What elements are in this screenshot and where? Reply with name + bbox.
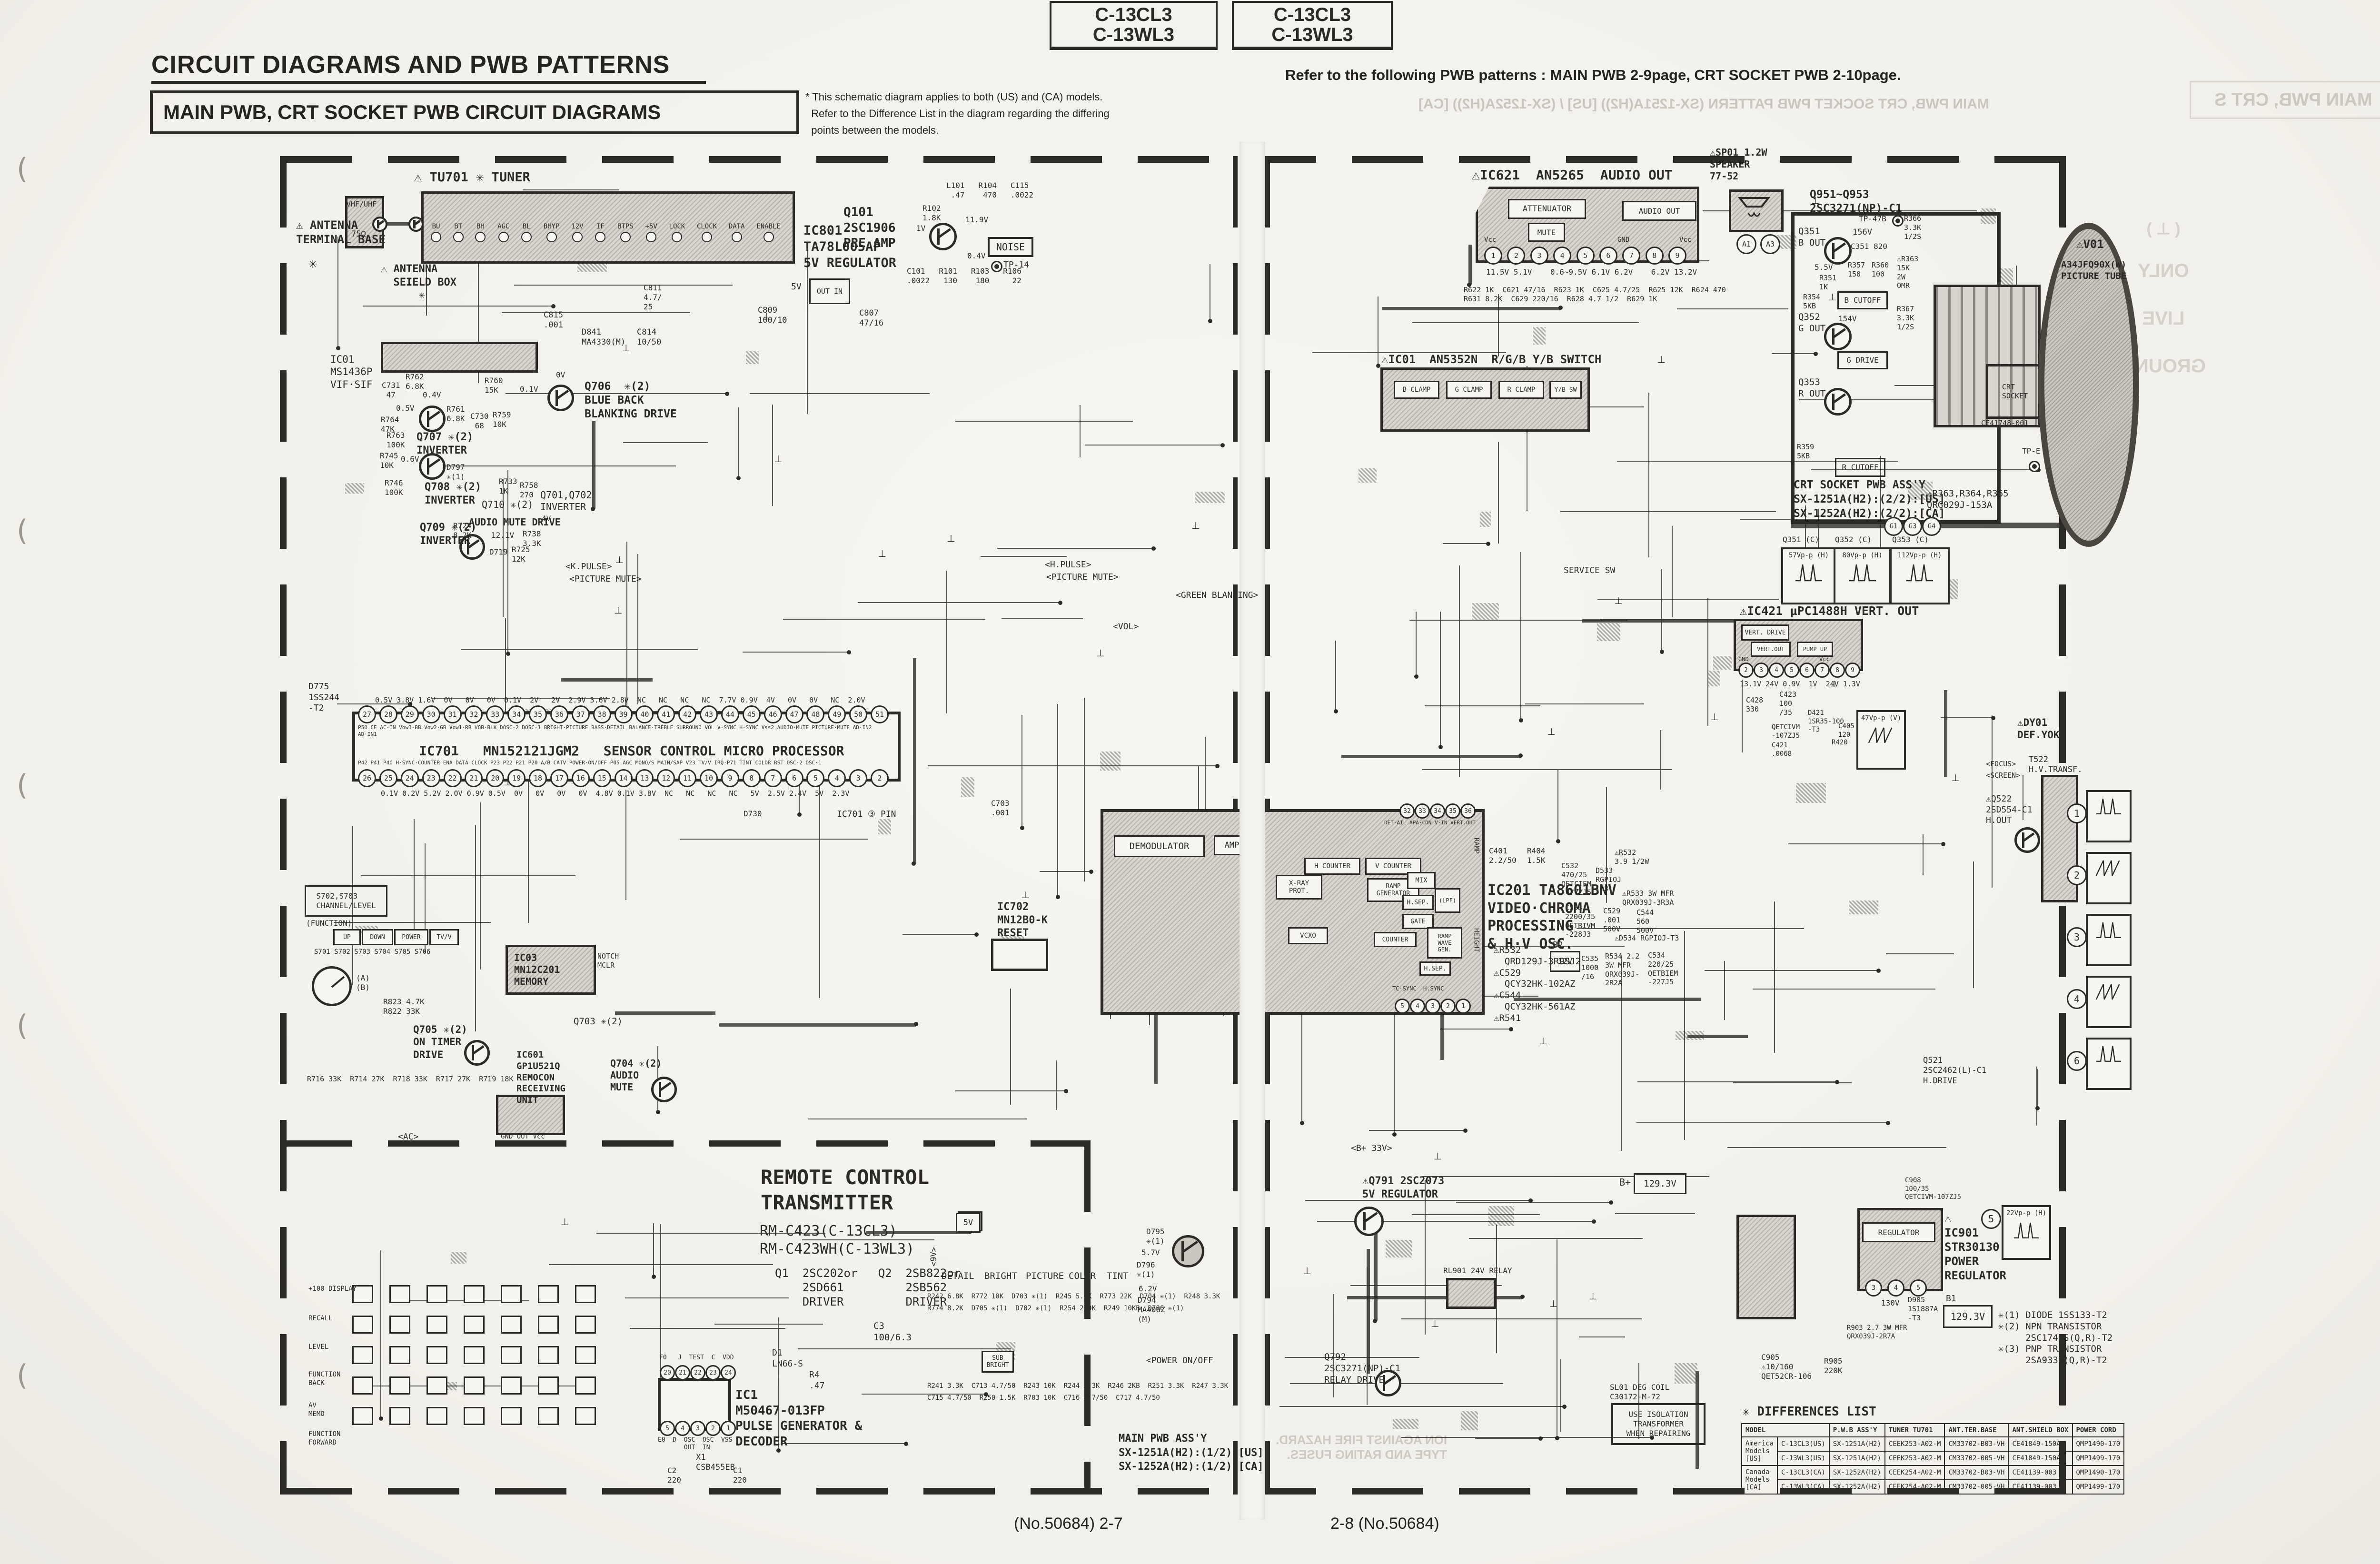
vert-part: C428 330 <box>1746 696 1763 714</box>
ic701-pin: 45 <box>743 705 761 723</box>
junction-dot <box>1609 1200 1613 1205</box>
ic201-height: HEIGHT <box>1472 928 1480 952</box>
ic701-pin: 4 <box>828 769 846 787</box>
snub-part: C532 470/25 QETCIEM -477ZJ5 <box>1561 861 1591 897</box>
b1-box: 129.3V <box>1943 1305 1993 1328</box>
wire-segment <box>615 1011 716 1015</box>
ic601-pins: GND OUT Vcc <box>501 1133 545 1141</box>
ic701-pin: 49 <box>828 705 846 723</box>
ground-symbol: ⊥ <box>615 554 624 565</box>
crt-v154: 154V <box>1838 314 1857 324</box>
bb-part: R760 15K <box>485 376 503 395</box>
tpe-label: TP-E <box>2022 446 2041 456</box>
remote-key-label: LEVEL <box>308 1343 328 1352</box>
ic621-pin: 6 <box>1599 247 1617 265</box>
q101-part: L101 R104 C115 .47 470 .0022 <box>946 181 1033 200</box>
v57-label: 5.7V <box>1141 1248 1160 1257</box>
diff-cell: CEEK253-A02-M <box>1885 1437 1945 1451</box>
junction-dot <box>1414 674 1418 679</box>
ic421-volts: 13.1V 24V 0.9V 1V 24V 1.3V <box>1740 680 1860 689</box>
remote-key <box>426 1285 447 1303</box>
q101-volt: 11.9V <box>965 215 988 225</box>
junction-dot <box>1660 650 1664 654</box>
ic201-warnings: ⚠R532 QRD129J-3R9SJ2 ⚠C529 QCY32HK-102AZ… <box>1494 945 1581 1024</box>
wire-segment <box>798 1348 1011 1349</box>
ic701-pin: 14 <box>615 769 633 787</box>
remote-key <box>538 1407 559 1425</box>
ic1-pin: 1 <box>721 1421 736 1436</box>
wire-segment <box>1661 569 1662 652</box>
dial-ab-labels: (A) (B) <box>356 973 370 992</box>
sig-vol: <VOL> <box>1113 622 1139 633</box>
ic621-pin: 1 <box>1484 247 1502 265</box>
vert-part: C405 120 <box>1838 723 1854 739</box>
diff-header: ANT.TER.BASE <box>1944 1424 2008 1437</box>
wire-segment <box>719 1023 916 1027</box>
wire-segment <box>660 1224 661 1388</box>
remote-key <box>389 1316 410 1334</box>
c1-label: C1 220 <box>733 1466 747 1485</box>
focus-label: <FOCUS> <box>1986 760 2016 769</box>
remote-key <box>575 1346 596 1364</box>
registration-mark: ( <box>17 1009 28 1042</box>
model-box-2: C-13CL3 C-13WL3 <box>1232 1 1393 50</box>
wire-segment <box>858 602 1060 603</box>
diff-cell: CM33702-005-VH <box>1944 1451 2008 1465</box>
wire-segment <box>743 652 849 653</box>
wire-segment <box>913 658 916 863</box>
diff-header: POWER CORD <box>2073 1424 2124 1437</box>
bplus-value: 129.3V <box>1644 1178 1676 1189</box>
ic901-block <box>1857 1208 1943 1291</box>
component-shade <box>1393 1419 1418 1429</box>
ic1-pin: 22 <box>690 1365 705 1380</box>
ic621-pin: 5 <box>1577 247 1595 265</box>
diff-cell: C-13CL3(CA) <box>1777 1465 1829 1480</box>
diff-cell: SX-1251A(H2) <box>1829 1437 1885 1451</box>
wire-segment <box>1425 1180 1426 1335</box>
ground-symbol: ⊥ <box>774 453 782 465</box>
ic701-pin3-note: IC701 ③ PIN <box>837 809 896 820</box>
noise-box: NOISE <box>988 237 1033 257</box>
bleed-box-text: MAIN PWB, CRT S <box>2214 90 2372 110</box>
q522-label: ⚠Q522 2SD554-C1 H.OUT <box>1986 794 2033 826</box>
d1-label: D1 LN66-S <box>772 1348 803 1369</box>
tuner-pin <box>620 232 631 242</box>
sig-hpulse: <H.PULSE> <box>1045 560 1091 571</box>
ic701-pin: 31 <box>444 705 462 723</box>
component-shade <box>1849 901 1878 914</box>
ic701-pin: 16 <box>572 769 590 787</box>
q792-label: Q792 2SC3271(NP)-C1 RELAY DRIVE <box>1324 1352 1400 1386</box>
junction-dot <box>725 392 729 396</box>
ic621-parts: R622 1K C621 47/16 R623 1K C625 4.7/25 R… <box>1464 286 1726 304</box>
remote-key <box>389 1376 410 1395</box>
speaker-icon <box>1735 194 1773 223</box>
junction-dot <box>1558 306 1563 310</box>
q708-label: Q708 ✳(2) INVERTER <box>425 481 481 507</box>
ground-symbol: ⊥ <box>1549 1298 1557 1309</box>
ic201-pin: 3 <box>1425 999 1440 1014</box>
bb-part: R724 8.2K <box>453 521 472 540</box>
remote-key-label: FUNCTION FORWARD <box>308 1430 340 1447</box>
ic701-pin: 5 <box>806 769 824 787</box>
ic701-pin: 22 <box>444 769 462 787</box>
wire-segment <box>1084 698 1085 881</box>
diff-cell: QMP1499-170 <box>2073 1480 2124 1494</box>
wire-segment <box>1412 322 1639 323</box>
wire-segment <box>361 875 575 876</box>
frame-top <box>281 156 2066 163</box>
diff-cell: QMP1490-170 <box>2073 1437 2124 1451</box>
bb-part: R762 6.8K <box>406 372 424 391</box>
page-subtitle: MAIN PWB, CRT SOCKET PWB CIRCUIT DIAGRAM… <box>163 101 661 124</box>
remote-key-label: RECALL <box>308 1315 333 1323</box>
ic701-pin: 18 <box>529 769 547 787</box>
component-shade <box>1713 656 1732 670</box>
bb-volt: 12.1V <box>491 531 514 540</box>
ic801-part: C809 100/10 <box>758 306 787 326</box>
wire-segment <box>783 619 985 620</box>
rgbsw-gclamp: G CLAMP <box>1446 381 1492 399</box>
ic421-pin: 9 <box>1845 663 1860 678</box>
wave5-box: 22Vp-p (H) <box>2002 1205 2051 1260</box>
wire-segment <box>1469 1238 1643 1239</box>
ic801-part: C814 10/50 <box>637 327 661 348</box>
isolation-warning-box: USE ISOLATION TRANSFORMER WHEN REPAIRING <box>1611 1403 1706 1445</box>
junction-dot <box>1518 753 1523 758</box>
junction-dot <box>1463 1128 1468 1133</box>
wire-segment <box>997 548 1153 549</box>
ic1-label: IC1 M50467-013FP PULSE GENERATOR & DECOD… <box>735 1387 862 1449</box>
junction-dot <box>1556 839 1560 843</box>
wire-segment <box>592 421 595 509</box>
tuner-pin <box>646 232 656 242</box>
wire-segment <box>981 556 1067 557</box>
snub-part: C533 2200/35 QETBIVM -228J3 <box>1565 903 1595 939</box>
bb-volt: 4V <box>542 514 551 524</box>
junction-dot <box>797 812 802 817</box>
d905-label: D905 1S1887A -T3 <box>1908 1296 1938 1322</box>
diff-cell: CE41139-003 <box>2008 1465 2072 1480</box>
model-2-line1: C-13CL3 <box>1274 5 1351 25</box>
ic801-part: D841 MA4330(M) <box>582 327 625 348</box>
wire-segment <box>1369 1130 1465 1131</box>
ground-symbol: ⊥ <box>1657 354 1666 365</box>
wire-segment <box>1597 599 1779 600</box>
wire-segment <box>1707 598 1708 726</box>
sub-bright-box: SUB BRIGHT <box>982 1351 1014 1373</box>
wire-segment <box>2036 1067 2037 1126</box>
r-cutoff-label: R CUTOFF <box>1842 463 1878 472</box>
sig-picmute: <PICTURE MUTE> <box>569 574 642 585</box>
rgbsw-label: ⚠IC01 AN5352N R/G/B Y/B SWITCH <box>1381 352 1601 366</box>
sig-greenblank: <GREEN BLANKING> <box>1176 590 1258 601</box>
ic701-pin: 27 <box>358 705 376 723</box>
wire-segment <box>1468 245 1472 285</box>
wave5-value: 22Vp-p (H) <box>2006 1209 2046 1217</box>
wire-segment <box>750 393 929 394</box>
q351-label: Q351 B OUT <box>1798 226 1825 249</box>
q705-transistor <box>464 1040 490 1066</box>
wavecol-box <box>2086 1038 2132 1090</box>
remote-key <box>464 1376 485 1395</box>
remote-key <box>538 1316 559 1334</box>
footer-right: 2-8 (No.50684) <box>1330 1515 1439 1533</box>
ic702-label: IC702 MN12B0-K RESET <box>997 901 1048 940</box>
isolation-warning-text: USE ISOLATION TRANSFORMER WHEN REPAIRING <box>1626 1410 1691 1438</box>
q951-label: Q951~Q953 2SC3271(NP)-C1 <box>1810 188 1902 216</box>
q101-label: Q101 2SC1906 PRE AMP <box>843 205 896 251</box>
coax-plug-icon <box>408 217 424 232</box>
bb-part: R745 10K <box>380 451 398 470</box>
junction-dot <box>1373 1319 1377 1323</box>
component-shade <box>1676 1031 1704 1039</box>
vert-part: R420 <box>1832 739 1848 747</box>
sig-service: SERVICE SW <box>1564 565 1615 576</box>
diff-cell: SX-1251A(H2) <box>1829 1451 1885 1465</box>
crt-r366: R366 3.3K 1/2S <box>1904 214 1921 241</box>
speaker-a1-label: A1 <box>1742 240 1751 248</box>
component-shade <box>1480 512 1491 527</box>
wire-segment <box>1520 552 1521 720</box>
ic201-pb-labels: TC·SYNC H.SYNC <box>1392 985 1444 992</box>
q521-label: Q521 2SC2462(L)-C1 H.DRIVE <box>1923 1056 1986 1086</box>
ic701-pin: 10 <box>700 769 718 787</box>
ic701-pin: 2 <box>871 769 889 787</box>
antenna-star: ✳ <box>308 255 317 273</box>
ic201-counter-label: COUNTER <box>1382 936 1408 943</box>
wire-segment <box>507 470 508 653</box>
wire-segment <box>625 790 626 900</box>
remote-key <box>389 1285 410 1303</box>
wire-segment <box>1040 871 1091 872</box>
tuner-pin-label: BL <box>523 223 531 230</box>
ic1-pin: 24 <box>721 1365 736 1380</box>
wire-segment <box>561 678 653 682</box>
ic421-pin: 5 <box>1784 663 1799 678</box>
vhf-ohm: 75Ω <box>351 229 366 239</box>
ic701-volts-top: 0.5V 3.8V 1.6V 0V 0V 0V 0.1V 2V 2V 2.9V … <box>375 696 865 705</box>
tp47b-label: TP-47B <box>1859 214 1886 224</box>
remote-key <box>538 1346 559 1364</box>
wire-segment <box>1615 1213 1695 1214</box>
vhf-label: VHF/UHF <box>347 200 377 209</box>
remote-key <box>464 1316 485 1334</box>
wire-segment <box>714 1324 823 1325</box>
diff-cell: CE41849-150A <box>2008 1451 2072 1465</box>
ic1-bottom-labels: E0 D OSC OSC VSS OUT IN <box>658 1436 733 1452</box>
q703-label: Q703 ✳(2) <box>574 1016 623 1028</box>
ic201-pin: 5 <box>1395 999 1410 1014</box>
remote-key <box>352 1346 373 1364</box>
ctl-tint: TINT <box>1107 1271 1129 1282</box>
rgbsw-bclamp-label: B CLAMP <box>1402 386 1430 394</box>
ic1-pin: 20 <box>660 1365 675 1380</box>
ic421-pins: 23456789 <box>1738 663 1853 678</box>
wire-segment <box>502 312 691 313</box>
remote-key <box>464 1285 485 1303</box>
wire-segment <box>1021 715 1022 828</box>
wire-segment <box>1378 297 1378 366</box>
component-shade <box>1796 783 1826 802</box>
sig-kpulse: <K.PULSE> <box>565 562 612 573</box>
junction-dot <box>1486 542 1490 546</box>
crt-r363: ⚠R363 15K 2W OMR <box>1897 255 1918 290</box>
ic621-attenuator-label: ATTENUATOR <box>1523 204 1571 214</box>
b-cutoff-label: B CUTOFF <box>1844 296 1881 305</box>
ic901-pins: 345 <box>1865 1279 1927 1297</box>
wire-segment <box>630 1328 785 1329</box>
ic621-audioout: AUDIO OUT <box>1622 201 1696 221</box>
ic701-pin: 3 <box>849 769 867 787</box>
ic701-pin: 23 <box>422 769 440 787</box>
screen-label: <SCREEN> <box>1986 771 2020 780</box>
crt-ce-label: CE41748-001 <box>1981 419 2028 428</box>
wave-vert: 47Vp-p (V) <box>1856 710 1906 770</box>
q708-transistor <box>419 453 446 480</box>
tuner-pin-label: BT <box>454 223 462 230</box>
remote-key <box>426 1376 447 1395</box>
wire-segment <box>1677 308 1788 309</box>
wavecol-box <box>2086 914 2132 966</box>
junction-dot <box>1300 1121 1304 1125</box>
ic621-volts: 11.5V 5.1V 0.6~9.5V 6.1V 6.2V 6.2V 13.2V <box>1486 267 1697 277</box>
wire-segment <box>1727 1147 1947 1148</box>
ic421-pin: 2 <box>1738 663 1754 678</box>
r404-label: R404 1.5K <box>1527 846 1546 865</box>
tp47b-testpoint <box>1892 215 1904 227</box>
remote-key <box>389 1407 410 1425</box>
wave-q353-title: Q353 (C) <box>1892 535 1929 544</box>
ic701-pin: 17 <box>550 769 568 787</box>
page-subtitle-box: MAIN PWB, CRT SOCKET PWB CIRCUIT DIAGRAM… <box>150 90 799 134</box>
wire-segment <box>475 825 476 1031</box>
wire-segment <box>1080 405 1081 457</box>
q101-part: R102 1.8K <box>922 204 941 223</box>
c908-label: C908 100/35 QETCIVM-107ZJ5 <box>1905 1177 1961 1202</box>
diff-header: ANT.SHIELD BOX <box>2008 1424 2072 1437</box>
wire-segment <box>1636 1122 1888 1123</box>
tuner-pin-label: BHYP <box>544 223 560 230</box>
ic701-pins-top: 2728293031323334353637383940414243444546… <box>358 705 889 723</box>
refer-text: Refer to the following PWB patterns : MA… <box>1285 67 1901 84</box>
ic201-amp-label: AMP <box>1225 841 1240 850</box>
wire-segment <box>1057 704 1058 897</box>
bb-part: R761 6.8K <box>446 405 465 424</box>
wavecol-num: 6 <box>2067 1051 2087 1071</box>
remote-key <box>538 1285 559 1303</box>
ic701-pins-bottom: 2625242322212019181716151413121110987654… <box>358 769 889 787</box>
wave-q351: 57Vp-p (H) <box>1781 547 1836 604</box>
wire-segment <box>928 765 1217 766</box>
tuner-pin-label: 12V <box>571 223 583 230</box>
ic201-hcounter: H COUNTER <box>1304 858 1360 875</box>
diff-title: ✳ DIFFERENCES LIST <box>1742 1404 1876 1420</box>
wire-segment <box>1409 620 1627 621</box>
ctl-bright: BRIGHT <box>984 1271 1017 1282</box>
crt-assy-label: CRT SOCKET PWB ASS'Y SX-1251A(H2):(2/2):… <box>1794 478 1945 521</box>
junction-dot <box>736 476 741 480</box>
bb-volt: 0V <box>556 370 565 380</box>
junction-dot <box>652 1275 656 1279</box>
remote-key <box>501 1407 522 1425</box>
bb-volt: 0.6V <box>401 455 419 464</box>
ic621-attenuator: ATTENUATOR <box>1508 199 1586 219</box>
q706-transistor <box>547 385 574 411</box>
switch-down: DOWN <box>362 929 393 945</box>
switch-power: POWER <box>394 929 428 945</box>
wire-segment <box>1886 953 1954 954</box>
ic421-pin: 7 <box>1815 663 1830 678</box>
ic701-pin: 41 <box>657 705 675 723</box>
ic701-pinlabels-bottom: P42 P41 P40 H·SYNC·COUNTER ENA DATA CLOC… <box>358 760 889 766</box>
model-1-line1: C-13CL3 <box>1095 5 1172 25</box>
remote-title: REMOTE CONTROL TRANSMITTER <box>761 1165 929 1215</box>
q101-transistor <box>929 223 957 250</box>
model-2-line2: C-13WL3 <box>1271 25 1353 45</box>
snub-part: C534 220/25 QETBIEM -227J5 <box>1648 951 1678 987</box>
bleed-header: MAIN PWB, CRT SOCKET PWB PATTERN (SX-125… <box>1418 96 1989 112</box>
wire-segment <box>1973 861 1974 988</box>
junction-dot <box>1562 1405 1567 1409</box>
ic701-pin: 19 <box>507 769 526 787</box>
ic701-pin: 6 <box>785 769 803 787</box>
regulator-transistor <box>1172 1235 1204 1267</box>
g-drive-box: G DRIVE <box>1837 351 1888 369</box>
diff-cell: CM33702-B03-VH <box>1944 1437 2008 1451</box>
bb-part: R746 100K <box>385 478 403 497</box>
wire-segment <box>1475 1438 1540 1439</box>
ground-symbol: ⊥ <box>878 548 886 559</box>
wavecol-num: 2 <box>2067 865 2087 885</box>
component-shade <box>1359 468 1376 483</box>
speaker-a1-pin: A1 <box>1736 234 1756 254</box>
channel-level-label: S702,S703 CHANNEL/LEVEL <box>316 891 376 911</box>
crt-v55: 5.5V <box>1815 263 1833 272</box>
junction-dot <box>656 1110 660 1114</box>
component-shade <box>878 819 892 834</box>
junction-dot <box>1020 826 1024 830</box>
sl01-label: SL01 DEG COIL C30172-M-72 <box>1610 1383 1669 1402</box>
sig-power-onoff: <POWER ON/OFF <box>1146 1356 1213 1366</box>
ic201-demod: DEMODULATOR <box>1114 835 1205 857</box>
junction-dot <box>551 304 555 308</box>
ic201-mix: MIX <box>1407 872 1436 889</box>
tuner-pin <box>431 232 441 242</box>
bb-part: R759 10K <box>493 410 511 429</box>
wire-segment <box>1498 442 1499 544</box>
ic421-vcc: Vcc <box>1819 656 1830 663</box>
ic701-pin: 13 <box>635 769 654 787</box>
junction-dot <box>1220 443 1225 447</box>
ic621-pin: 3 <box>1530 247 1548 265</box>
diff-cell: C-13CL3(US) <box>1777 1437 1829 1451</box>
b1-label: B1 <box>1946 1294 1956 1305</box>
ic621-vcc1: Vcc <box>1484 236 1496 245</box>
footer-left: (No.50684) 2-7 <box>1014 1515 1123 1533</box>
crt-c351: C351 820 <box>1851 242 1887 251</box>
component-shade <box>961 777 974 797</box>
diff-cell: QMP1499-170 <box>2073 1451 2124 1465</box>
ic201-xray-label: X-RAY PROT. <box>1289 880 1309 895</box>
q101-part: C811 4.7/ 25 <box>644 283 662 312</box>
rgbsw-block <box>1380 367 1590 432</box>
rgbsw-rclamp: R CLAMP <box>1498 381 1544 399</box>
remote-key-label: AV MEMO <box>308 1402 325 1418</box>
tuner-pin-label: BU <box>432 223 440 230</box>
diff-cell: CEEK253-A02-M <box>1885 1451 1945 1465</box>
